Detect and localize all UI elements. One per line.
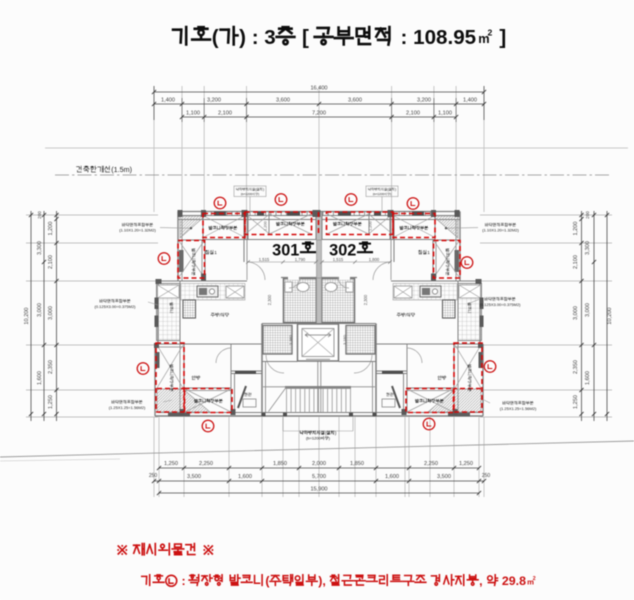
svg-text:),: ), bbox=[318, 574, 329, 588]
svg-text:(b=1200: (b=1200 bbox=[306, 436, 322, 441]
svg-text:1,790: 1,790 bbox=[295, 257, 306, 262]
svg-text:1,200: 1,200 bbox=[263, 221, 267, 231]
svg-text:(1.25X1.25=1.56M2): (1.25X1.25=1.56M2) bbox=[109, 405, 146, 410]
svg-text:1,250: 1,250 bbox=[573, 395, 579, 409]
svg-text:: 108.95: : 108.95 bbox=[395, 26, 476, 49]
svg-text:2,300: 2,300 bbox=[267, 294, 272, 305]
svg-text:1: 1 bbox=[214, 250, 217, 255]
svg-text:2,350: 2,350 bbox=[48, 360, 54, 374]
svg-text:(b=1200: (b=1200 bbox=[373, 192, 385, 196]
svg-text:3,500: 3,500 bbox=[437, 474, 451, 480]
svg-text:1,850: 1,850 bbox=[273, 461, 287, 467]
svg-text:2,100: 2,100 bbox=[573, 255, 579, 269]
svg-text:1,850: 1,850 bbox=[350, 461, 364, 467]
svg-text:250: 250 bbox=[149, 473, 158, 479]
svg-text:2: 2 bbox=[533, 576, 536, 582]
svg-text:(1.25X1.25=1.56M2): (1.25X1.25=1.56M2) bbox=[500, 406, 537, 411]
svg-text:2,350: 2,350 bbox=[573, 360, 579, 374]
svg-text:(b=1200: (b=1200 bbox=[241, 192, 253, 196]
svg-text:1,600: 1,600 bbox=[385, 474, 399, 480]
svg-text:1,600: 1,600 bbox=[238, 474, 252, 480]
svg-text:1,200: 1,200 bbox=[369, 221, 373, 231]
svg-text:2: 2 bbox=[487, 28, 492, 38]
svg-text:10,200: 10,200 bbox=[607, 307, 613, 324]
svg-text:3,000: 3,000 bbox=[37, 303, 43, 317]
svg-text:(: ( bbox=[212, 26, 219, 49]
svg-text:(0.125X3.00=0.375M2): (0.125X3.00=0.375M2) bbox=[94, 304, 136, 309]
svg-text:3,000: 3,000 bbox=[48, 306, 54, 320]
svg-text:2,100: 2,100 bbox=[48, 255, 54, 269]
svg-text:1,380: 1,380 bbox=[288, 334, 293, 345]
svg-text:2,100: 2,100 bbox=[218, 111, 232, 117]
svg-text:): ) bbox=[263, 188, 264, 192]
svg-text:3,000: 3,000 bbox=[573, 306, 579, 320]
svg-text:1,200: 1,200 bbox=[573, 222, 579, 236]
svg-text:15,900: 15,900 bbox=[310, 487, 327, 493]
svg-text:1,515: 1,515 bbox=[259, 257, 270, 262]
svg-text:3,200: 3,200 bbox=[417, 98, 431, 104]
svg-text:) : 3: ) : 3 bbox=[239, 26, 276, 49]
svg-text:200: 200 bbox=[37, 211, 42, 219]
svg-text:1,600: 1,600 bbox=[37, 371, 43, 385]
svg-text:2,000: 2,000 bbox=[312, 461, 326, 467]
svg-text:1: 1 bbox=[427, 250, 430, 255]
svg-text:(1.10X1.20=1.32M2): (1.10X1.20=1.32M2) bbox=[119, 228, 156, 233]
svg-text:10,200: 10,200 bbox=[24, 307, 30, 324]
svg-text:]: ] bbox=[494, 26, 507, 49]
svg-text:1,250: 1,250 bbox=[459, 461, 473, 467]
svg-text::: : bbox=[178, 574, 189, 588]
svg-text:1,250: 1,250 bbox=[48, 395, 54, 409]
svg-text:(0.125X3.00=0.375M2): (0.125X3.00=0.375M2) bbox=[479, 302, 521, 307]
svg-text:1,100: 1,100 bbox=[438, 111, 452, 117]
svg-text:16,400: 16,400 bbox=[310, 86, 327, 92]
svg-text:250: 250 bbox=[482, 473, 491, 479]
svg-text:2,300: 2,300 bbox=[363, 294, 368, 305]
svg-text:3,300: 3,300 bbox=[37, 241, 43, 255]
svg-text:[: [ bbox=[296, 26, 314, 49]
svg-text:,: , bbox=[479, 574, 486, 588]
svg-text:7,200: 7,200 bbox=[312, 111, 326, 117]
svg-text:1,800: 1,800 bbox=[369, 257, 380, 262]
svg-text:1,400: 1,400 bbox=[161, 98, 175, 104]
svg-text:3,200: 3,200 bbox=[207, 98, 221, 104]
svg-text:3,600: 3,600 bbox=[348, 98, 362, 104]
svg-text:3,180: 3,180 bbox=[342, 334, 347, 345]
svg-text:3,500: 3,500 bbox=[187, 474, 201, 480]
svg-text:2,250: 2,250 bbox=[424, 461, 438, 467]
svg-text:(1.10X1.20=1.32M2): (1.10X1.20=1.32M2) bbox=[482, 228, 519, 233]
svg-text:1,200: 1,200 bbox=[48, 222, 54, 236]
svg-text:1,100: 1,100 bbox=[186, 111, 200, 117]
svg-text:2,250: 2,250 bbox=[199, 461, 213, 467]
svg-text:29.8: 29.8 bbox=[498, 574, 526, 588]
svg-text:3,600: 3,600 bbox=[276, 98, 290, 104]
svg-text:1,250: 1,250 bbox=[164, 461, 178, 467]
svg-text:): ) bbox=[390, 192, 391, 196]
svg-text:5,700: 5,700 bbox=[312, 474, 326, 480]
svg-text:): ) bbox=[395, 188, 396, 192]
svg-text:2,100: 2,100 bbox=[406, 111, 420, 117]
svg-text:1,515: 1,515 bbox=[333, 257, 344, 262]
svg-text:): ) bbox=[258, 192, 259, 196]
svg-text:3,000: 3,000 bbox=[585, 303, 591, 317]
svg-text:200: 200 bbox=[585, 211, 590, 219]
svg-text:1,400: 1,400 bbox=[463, 98, 477, 104]
svg-text:(1.5m): (1.5m) bbox=[111, 165, 132, 174]
svg-text:3,300: 3,300 bbox=[585, 241, 591, 255]
svg-text:1,600: 1,600 bbox=[585, 371, 591, 385]
